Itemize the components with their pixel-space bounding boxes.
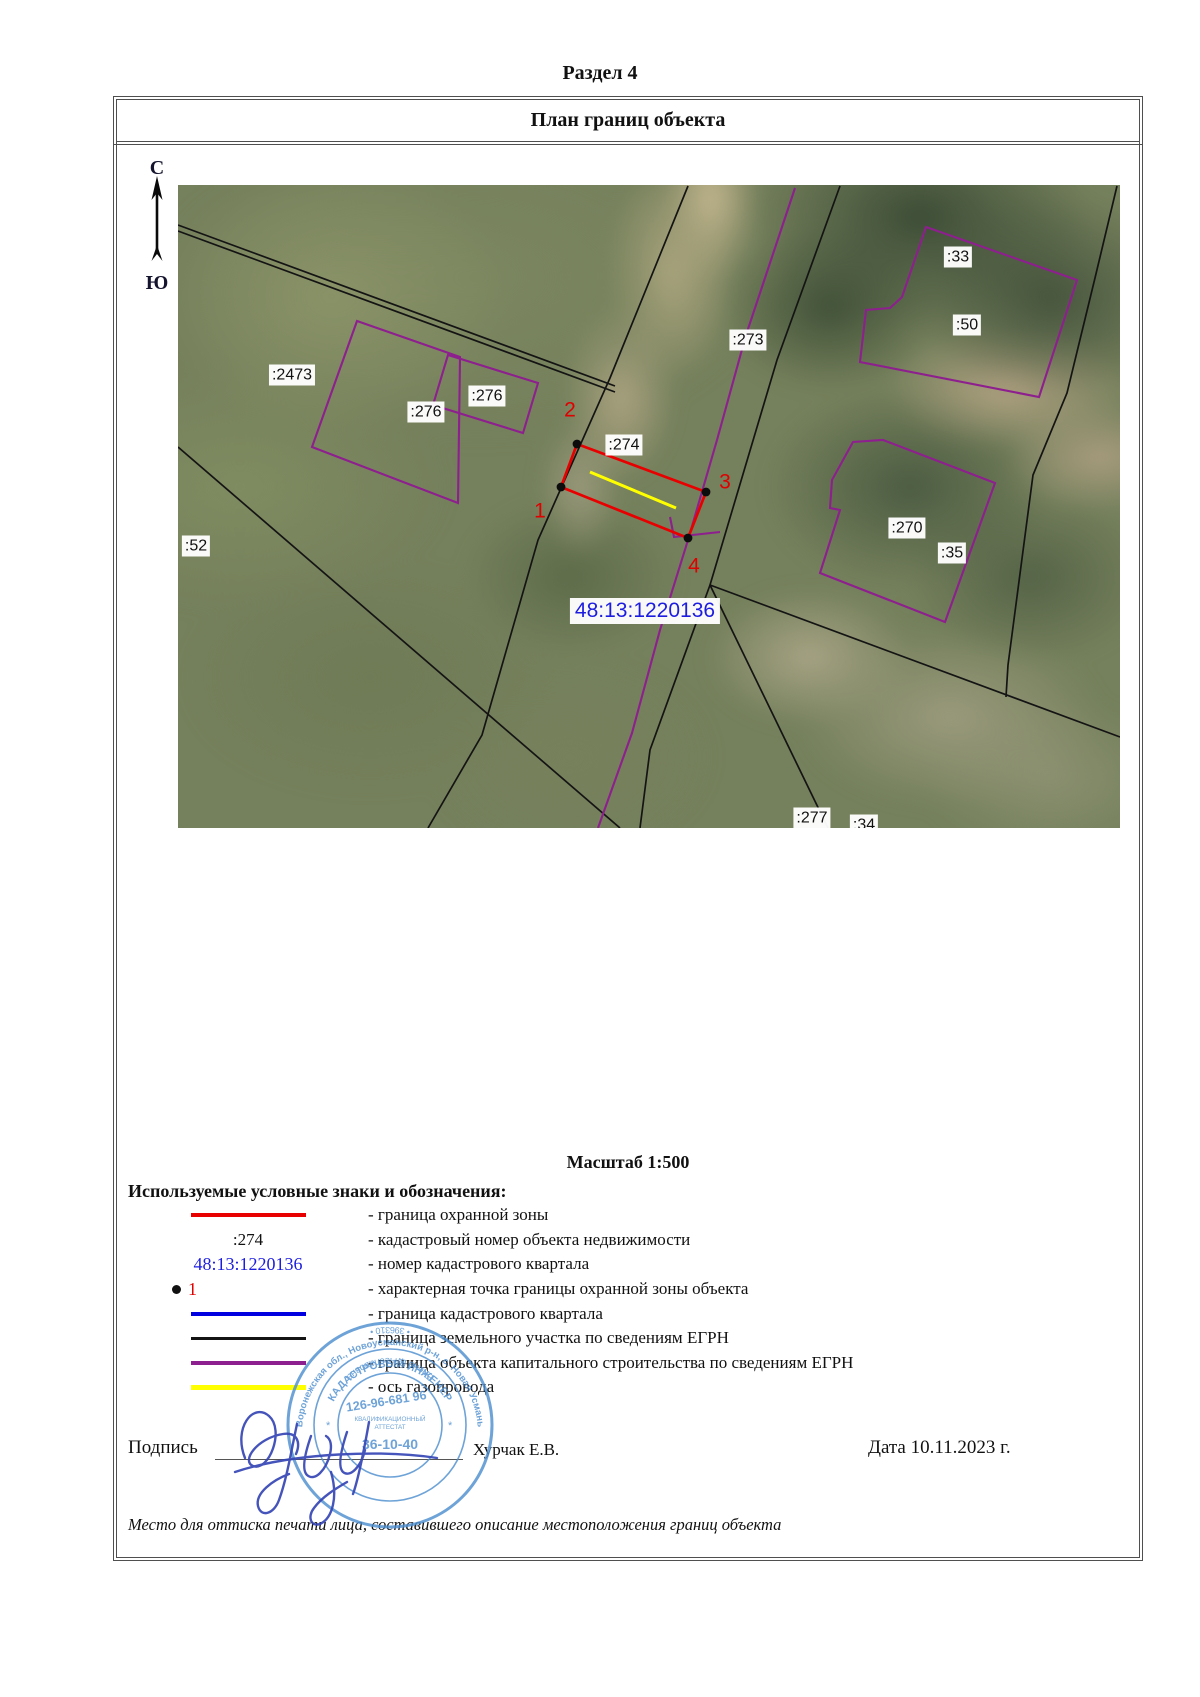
stamp-outer-text-bottom: • 396310 • [369, 1325, 411, 1337]
point-number: 1 [188, 1279, 197, 1300]
legend-symbol: 48:13:1220136 [128, 1254, 368, 1275]
parcel-number-label: :276 [468, 386, 505, 407]
legend: - граница охранной зоны:274- кадастровый… [128, 1203, 1068, 1400]
point-dot-icon [172, 1285, 181, 1294]
legend-text: - кадастровый номер объекта недвижимости [368, 1230, 690, 1250]
legend-symbol: 1 [128, 1279, 368, 1300]
legend-row: - граница охранной зоны [128, 1203, 1068, 1228]
map-labels-layer: :2473:276:276:274:273:33:50:270:35:52:27… [178, 185, 1120, 828]
parcel-number-label: :33 [944, 247, 972, 268]
plan-title: План границ объекта [113, 96, 1143, 145]
legend-text: - граница охранной зоны [368, 1205, 548, 1225]
legend-symbol: :274 [128, 1230, 368, 1250]
legend-text: - характерная точка границы охранной зон… [368, 1279, 748, 1299]
scale-label: Масштаб 1:500 [113, 1152, 1143, 1173]
signature-label: Подпись [128, 1437, 198, 1459]
parcel-number-label: :35 [938, 543, 966, 564]
parcel-number-label: :277 [793, 808, 830, 829]
legend-row: - граница земельного участка по сведения… [128, 1326, 1068, 1351]
parcel-number-label: :50 [953, 315, 981, 336]
parcel-number-label: :270 [888, 518, 925, 539]
boundary-point-number: 3 [719, 472, 731, 493]
line-red-swatch [191, 1213, 306, 1217]
legend-header: Используемые условные знаки и обозначени… [128, 1181, 507, 1202]
signature-date: Дата 10.11.2023 г. [868, 1437, 1011, 1459]
compass-north-label: С [150, 157, 164, 179]
parcel-number-label: :273 [729, 330, 766, 351]
section-title: Раздел 4 [0, 62, 1200, 85]
cadastral-number-sample: :274 [233, 1230, 263, 1250]
parcel-number-label: :274 [605, 435, 642, 456]
boundary-point-number: 4 [688, 556, 700, 577]
svg-text:• 396310 •: • 396310 • [369, 1325, 411, 1337]
parcel-number-label: :276 [407, 402, 444, 423]
quarter-number-sample: 48:13:1220136 [193, 1254, 302, 1275]
parcel-number-label: :2473 [269, 365, 315, 386]
compass-south-label: Ю [146, 272, 169, 294]
legend-row: 48:13:1220136- номер кадастрового кварта… [128, 1252, 1068, 1277]
legend-row: 1- характерная точка границы охранной зо… [128, 1277, 1068, 1302]
legend-text: - номер кадастрового квартала [368, 1254, 589, 1274]
parcel-number-label: :34 [850, 815, 878, 829]
legend-row: - граница кадастрового квартала [128, 1301, 1068, 1326]
plan-map: :2473:276:276:274:273:33:50:270:35:52:27… [178, 185, 1120, 828]
parcel-number-label: :52 [182, 536, 210, 557]
legend-symbol [128, 1213, 368, 1217]
cadastral-quarter-number: 48:13:1220136 [570, 598, 720, 624]
boundary-point-number: 2 [564, 400, 576, 421]
legend-row: :274- кадастровый номер объекта недвижим… [128, 1228, 1068, 1253]
handwritten-signature [225, 1378, 495, 1528]
north-arrow-icon [152, 176, 163, 261]
north-arrow: С Ю [133, 148, 183, 298]
boundary-point-number: 1 [534, 501, 546, 522]
legend-row: - граница объекта капитального строитель… [128, 1351, 1068, 1376]
document-page: { "document": { "section_title": "Раздел… [0, 0, 1200, 1697]
